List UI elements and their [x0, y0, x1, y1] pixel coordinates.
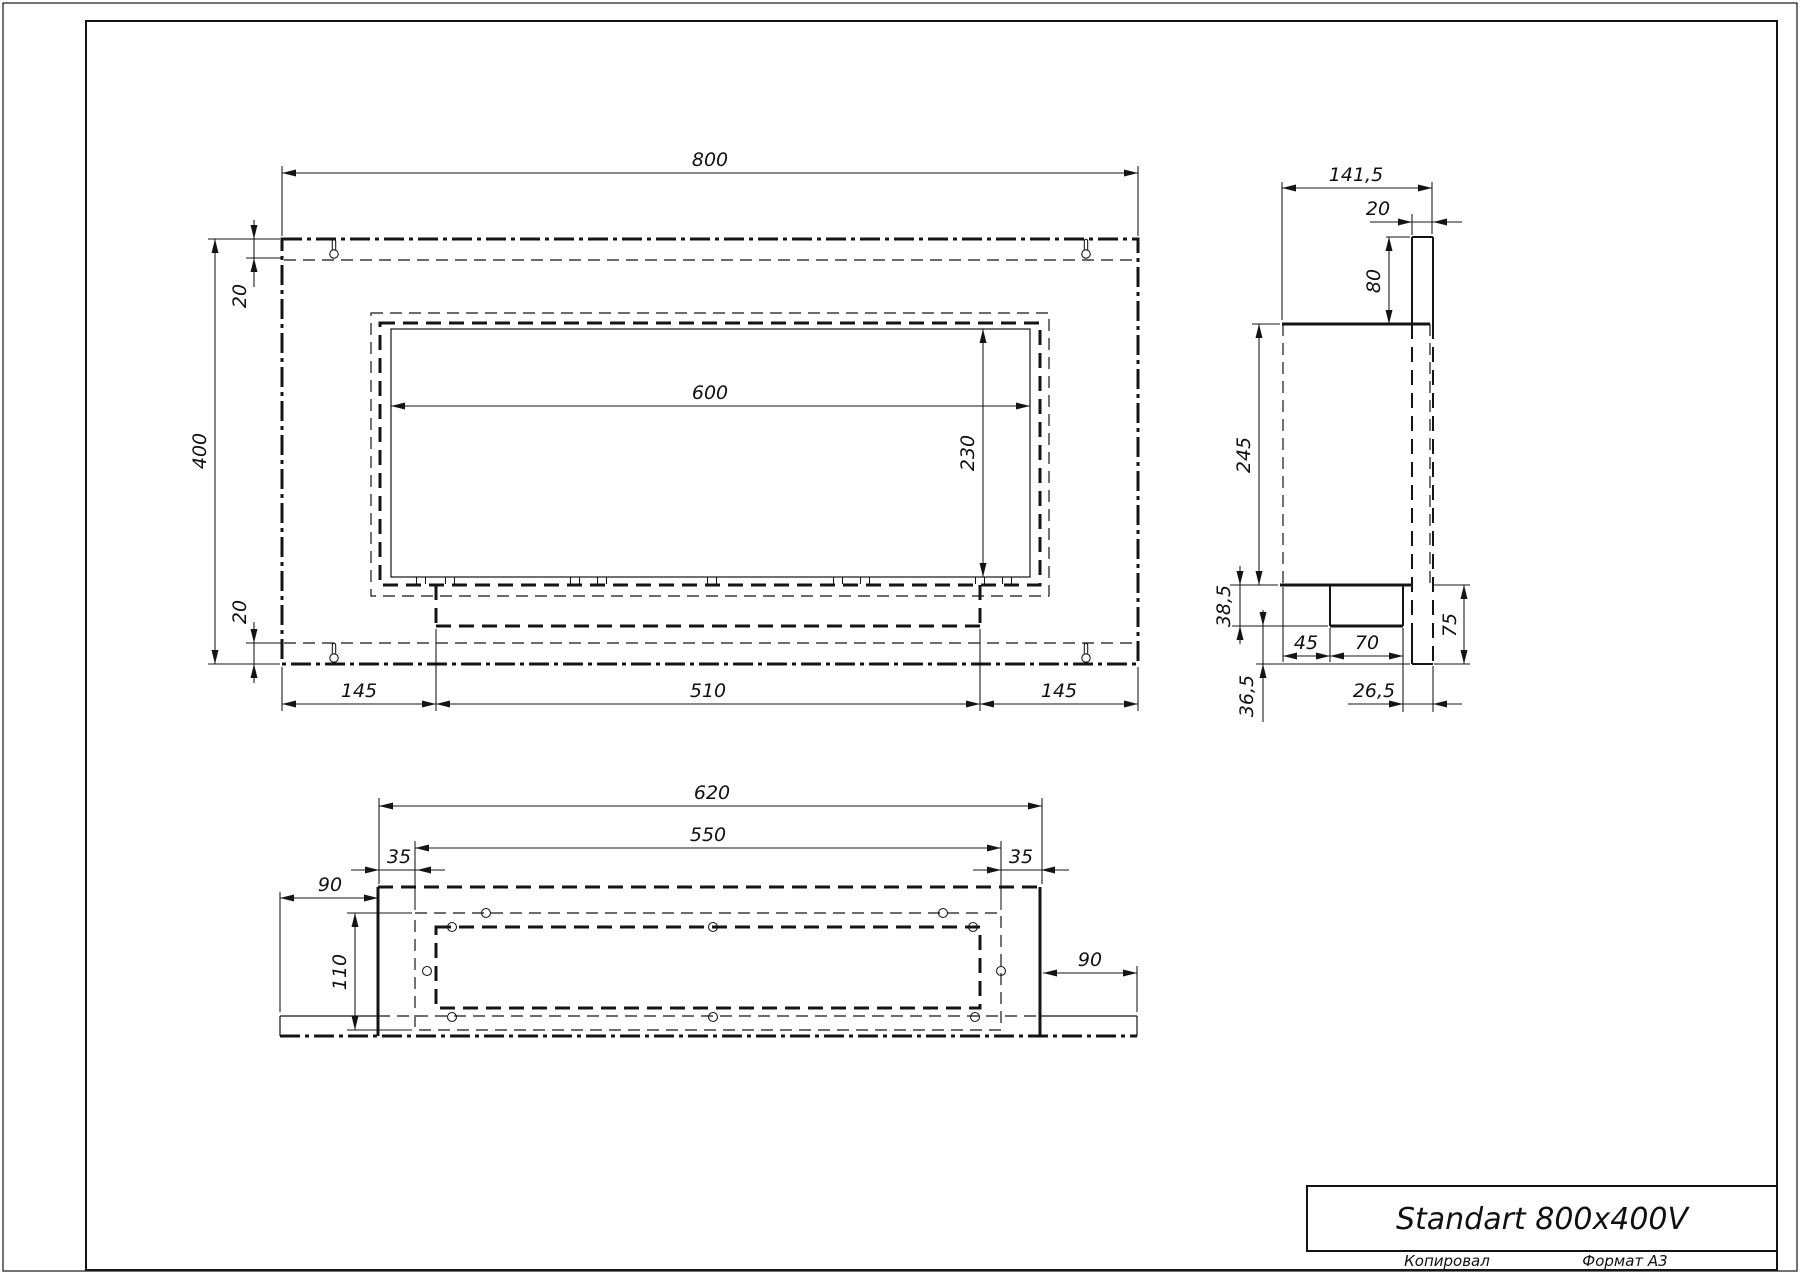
front-view — [282, 239, 1138, 664]
sheet-frame — [3, 3, 1797, 1271]
dim-side-tray-drop: 38,5 — [1213, 585, 1235, 627]
tab — [976, 577, 985, 584]
front-burner-tray — [436, 585, 980, 626]
dim-side-depth: 141,5 — [1329, 164, 1383, 186]
dim-side-panel-thickness: 20 — [1366, 198, 1390, 220]
dim-side-panel-extension: 75 — [1439, 613, 1461, 637]
side-view — [1280, 237, 1433, 664]
dim-front-opening-height: 230 — [957, 435, 979, 471]
dim-side-body-height: 245 — [1233, 437, 1255, 473]
dim-front-inset-top: 20 — [229, 284, 251, 308]
tab — [861, 577, 870, 584]
dim-side-bottom-offset: 36,5 — [1236, 675, 1258, 717]
dim-front-tray-width: 510 — [690, 680, 726, 702]
sheet-inner-frame — [86, 21, 1777, 1270]
dim-bottom-wing-right: 90 — [1078, 949, 1102, 971]
dim-bottom-glass-depth: 110 — [329, 954, 351, 990]
tab — [571, 577, 580, 584]
side-view-dimensions: 141,5 20 80 245 38,5 36,5 45 70 — [1213, 164, 1470, 722]
tab — [1003, 577, 1012, 584]
dim-bottom-body-width: 620 — [694, 782, 730, 804]
dim-front-tray-offset-right: 145 — [1041, 680, 1077, 702]
bottom-tray-outline — [436, 927, 980, 1008]
footer-copied-label: Копировал — [1404, 1252, 1490, 1270]
footer-format-label: Формат А3 — [1582, 1252, 1667, 1270]
dim-front-inset-bottom: 20 — [229, 600, 251, 624]
bottom-view-dimensions: 620 550 35 35 90 90 110 — [280, 782, 1137, 1030]
dim-front-height: 400 — [189, 433, 211, 469]
title-block: Standart 800x400V Копировал Формат А3 — [1307, 1186, 1777, 1270]
bottom-glass-zone — [415, 913, 1001, 1030]
dim-bottom-inset-left: 35 — [387, 846, 411, 868]
drawing-sheet: 800 400 20 20 600 230 145 510 145 — [0, 0, 1800, 1273]
front-tab-row — [417, 577, 1012, 584]
keyhole-icon — [330, 643, 338, 662]
dim-front-opening-width: 600 — [692, 382, 728, 404]
keyhole-icon — [330, 239, 338, 258]
dim-bottom-wing-left: 90 — [318, 874, 342, 896]
dim-front-width: 800 — [692, 149, 728, 171]
tab — [834, 577, 843, 584]
front-view-dimensions: 800 400 20 20 600 230 145 510 145 — [189, 149, 1138, 711]
front-flange-outer — [371, 313, 1049, 596]
keyhole-icon — [1082, 239, 1090, 258]
dim-side-tray-front-offset: 45 — [1294, 632, 1318, 654]
dim-bottom-glass-width: 550 — [690, 824, 726, 846]
keyhole-icon — [1082, 643, 1090, 662]
tab — [598, 577, 607, 584]
bottom-view — [280, 887, 1137, 1036]
dim-side-tray-back-offset: 26,5 — [1353, 680, 1395, 702]
dim-front-tray-offset-left: 145 — [341, 680, 377, 702]
bottom-hole-pattern — [423, 909, 1006, 1022]
drawing-canvas: 800 400 20 20 600 230 145 510 145 — [0, 0, 1800, 1273]
sheet-trim-border — [3, 3, 1797, 1271]
dim-side-top-offset: 80 — [1363, 269, 1385, 293]
tab — [417, 577, 426, 584]
tab — [708, 577, 717, 584]
front-glass-opening — [391, 329, 1030, 577]
front-outer-panel — [282, 239, 1138, 664]
front-firebox-outline — [380, 323, 1040, 585]
dim-bottom-inset-right: 35 — [1009, 846, 1033, 868]
tab — [446, 577, 455, 584]
dim-side-tray-depth: 70 — [1355, 632, 1379, 654]
product-title: Standart 800x400V — [1396, 1202, 1691, 1237]
